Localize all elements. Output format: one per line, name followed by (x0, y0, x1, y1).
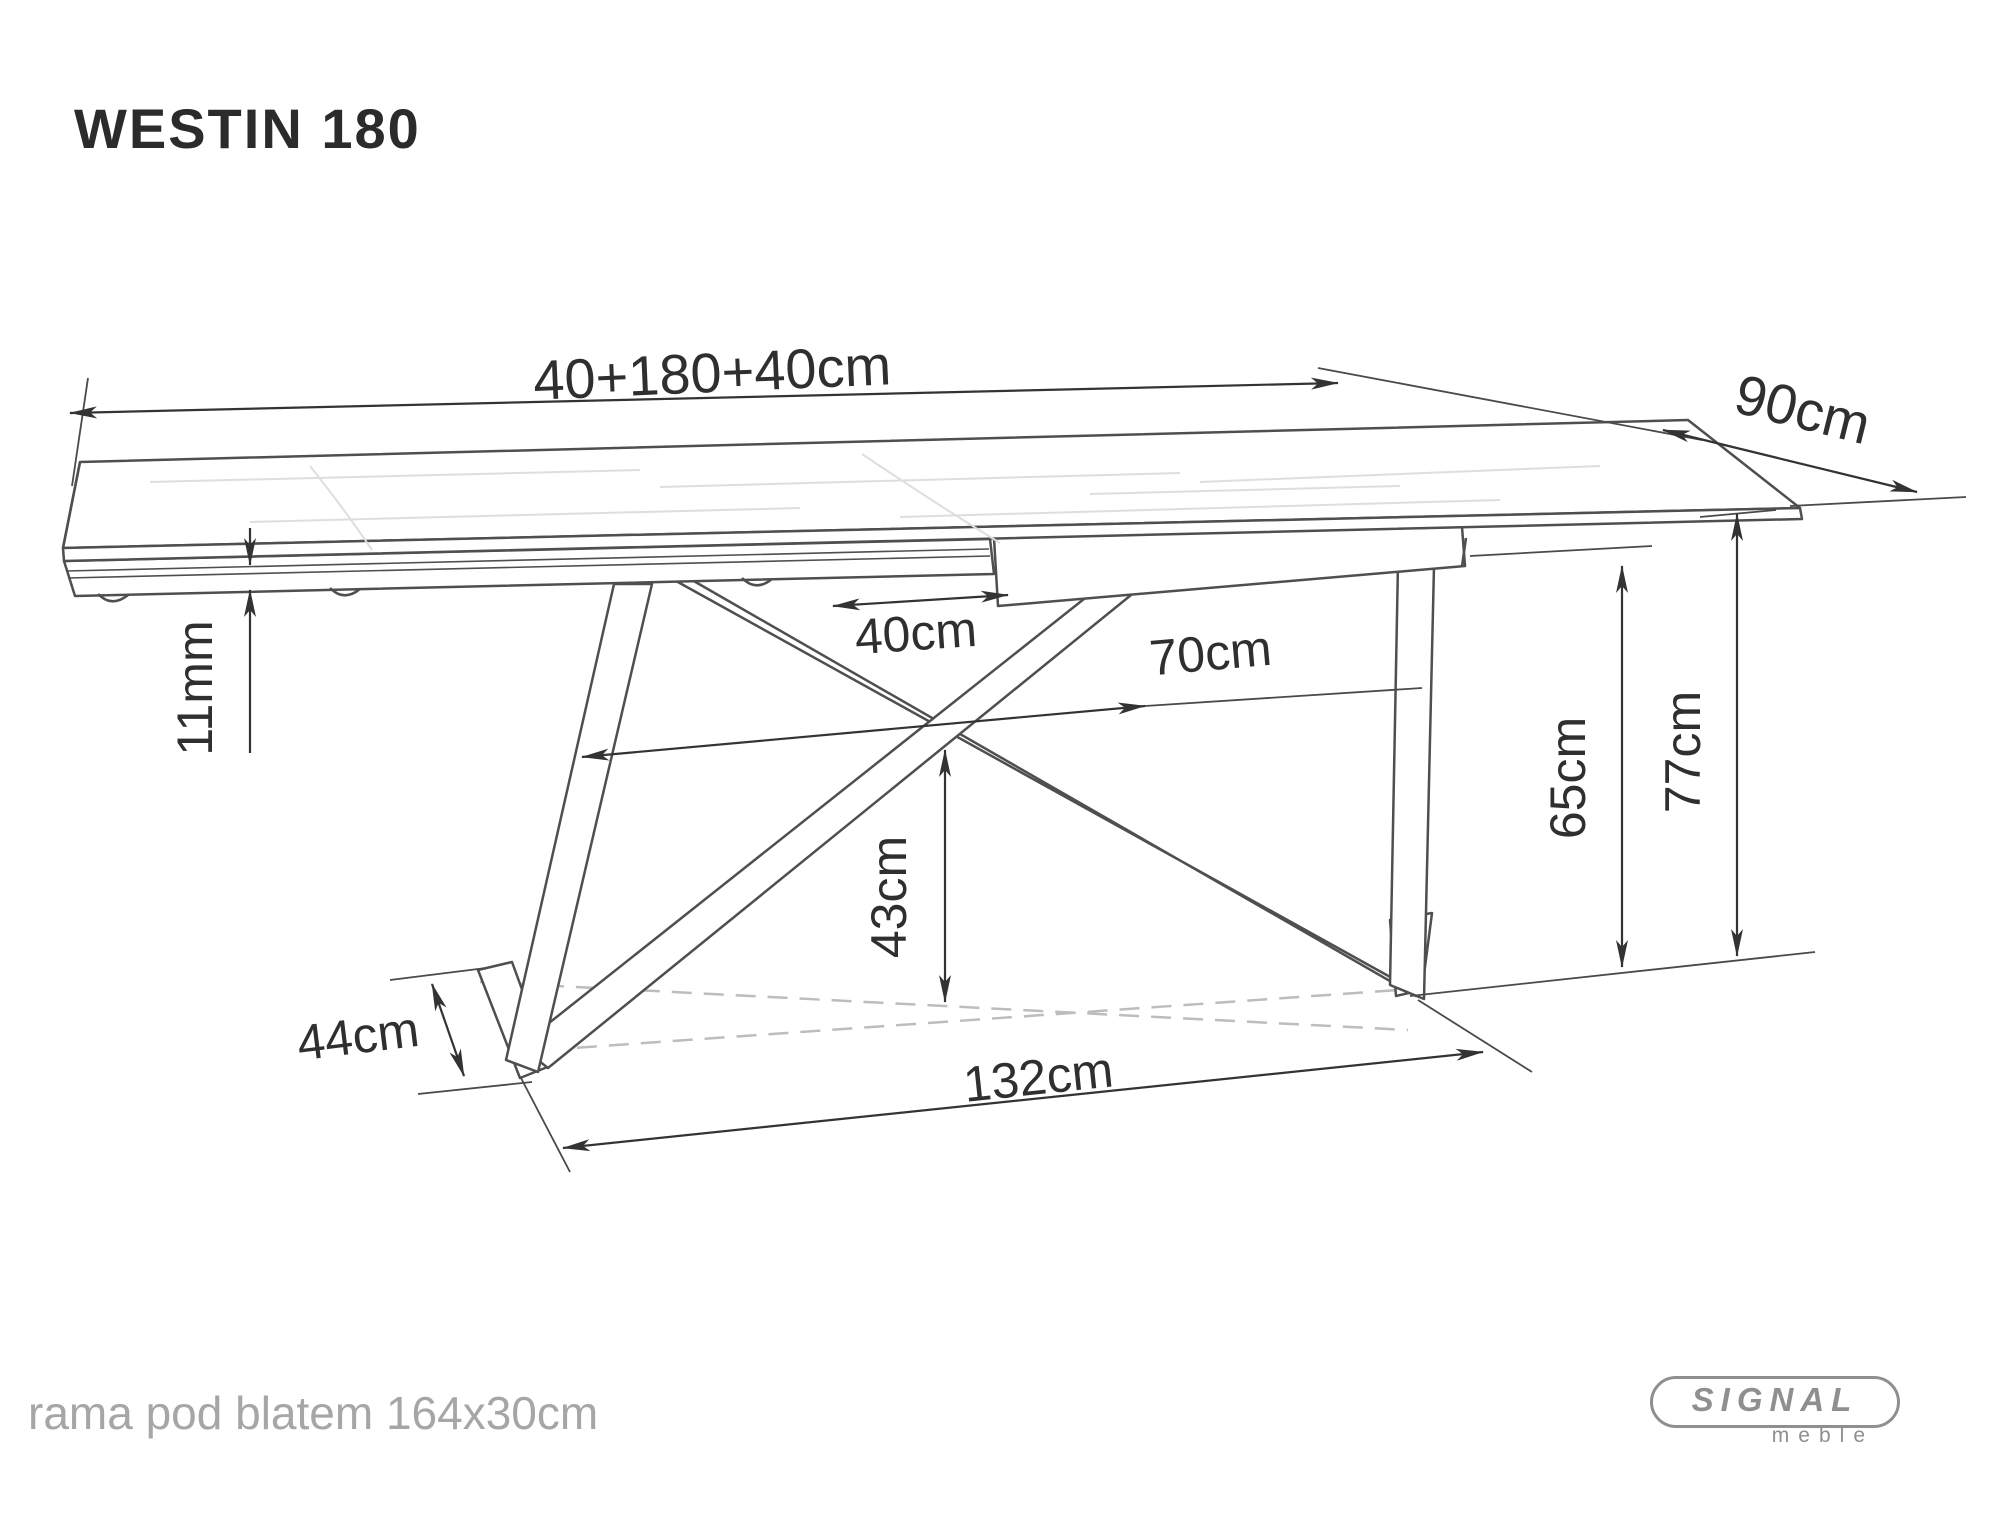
frame-apron (994, 527, 1465, 606)
dim-label-top-thickness: 11mm (167, 620, 223, 755)
footer-note: rama pod blatem 164x30cm (28, 1386, 598, 1440)
dim-label-base-span: 132cm (961, 1041, 1116, 1112)
diagram-page: 40+180+40cm 90cm 11mm 40cm 70cm 43cm 65c… (0, 0, 2000, 1530)
dim-label-leg-top-gap: 40cm (853, 601, 979, 665)
brand-logo-subtitle: meble (1650, 1424, 1900, 1448)
dim-label-center-clearance: 43cm (861, 836, 917, 958)
dim-line-foot-depth (432, 984, 464, 1076)
dim-label-leg-mid-span: 70cm (1147, 620, 1274, 686)
dim-label-depth: 90cm (1729, 362, 1877, 456)
dim-label-table-height: 77cm (1655, 691, 1711, 813)
brand-logo: SIGNAL meble (1650, 1376, 1900, 1448)
tabletop (63, 420, 1802, 606)
dim-label-frame-height: 65cm (1540, 717, 1596, 839)
brand-logo-badge: SIGNAL (1650, 1376, 1900, 1428)
page-title: WESTIN 180 (74, 96, 421, 161)
table-technical-drawing: 40+180+40cm 90cm 11mm 40cm 70cm 43cm 65c… (0, 0, 2000, 1530)
dim-label-foot-depth: 44cm (294, 1001, 422, 1071)
dim-line-leg-mid-span (582, 706, 1145, 757)
dim-label-total-length: 40+180+40cm (532, 333, 892, 412)
